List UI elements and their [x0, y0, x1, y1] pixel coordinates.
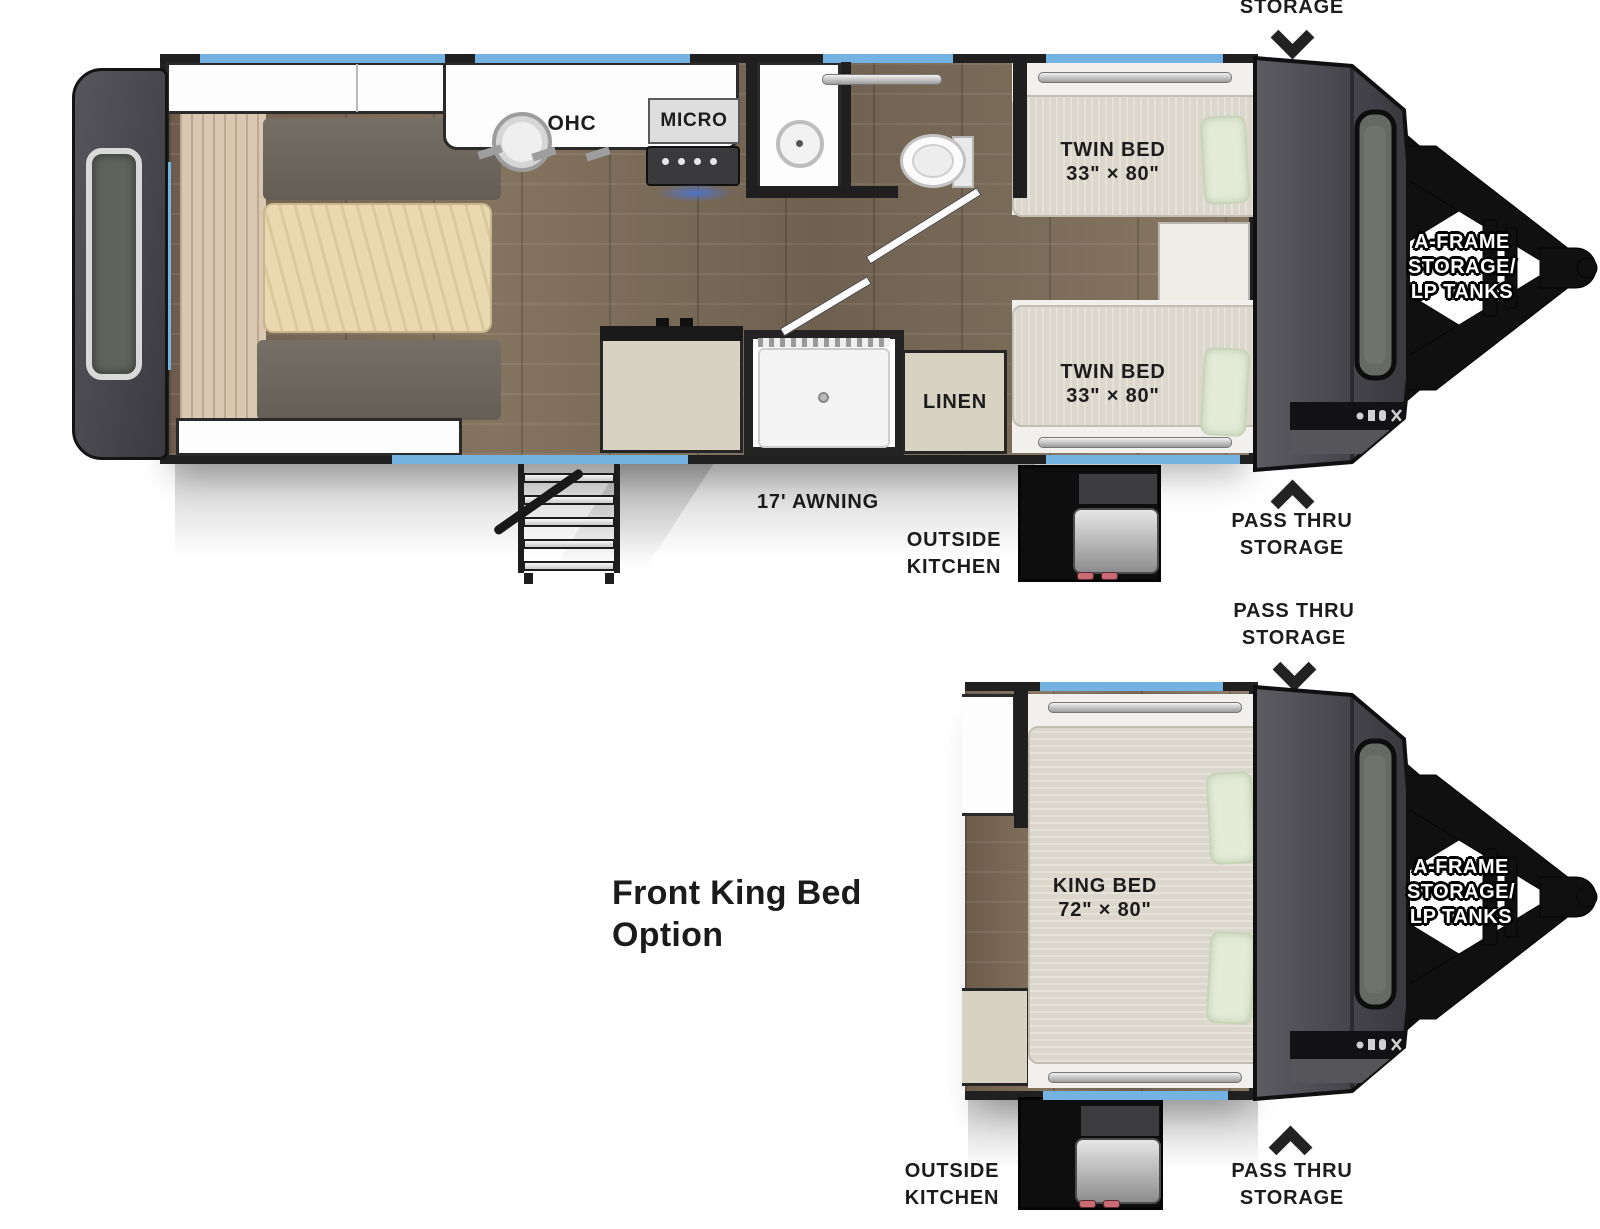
linen-label: LINEN [923, 390, 987, 414]
toilet-seat [912, 144, 954, 178]
outside-kitchen-line1: OUTSIDE [907, 527, 1002, 554]
outside-kitchen-knob [1077, 572, 1094, 580]
aframe-line3: LP TANKS [1408, 280, 1516, 305]
shower-door-track [758, 338, 890, 347]
aframe-line3: LP TANKS [1407, 905, 1515, 930]
wall-accent [1043, 1091, 1228, 1100]
bath-wall-left [746, 58, 757, 198]
pass-thru-label-bottom: PASS THRU STORAGE [1231, 1158, 1352, 1212]
outside-kitchen-unit [1018, 465, 1161, 582]
bed-rail [1038, 437, 1232, 448]
aframe-line1: A-FRAME [1407, 855, 1515, 880]
aframe-storage-label: A-FRAME STORAGE/ LP TANKS [1407, 855, 1515, 930]
pass-thru-label-top: PASS THRU STORAGE [1233, 598, 1354, 652]
pass-thru-label: PASS THRU STORAGE [1231, 508, 1352, 562]
outside-kitchen-label: OUTSIDE KITCHEN [905, 1158, 1000, 1212]
bath-shelf-bar [822, 74, 942, 85]
range-knob [662, 158, 669, 165]
fridge-handle [656, 318, 669, 327]
bath-wall-bottom [746, 186, 898, 198]
fridge [600, 326, 743, 453]
twin-bed-top-line2: 33" × 80" [1060, 162, 1165, 186]
twin-bed-bottom-line1: TWIN BED [1060, 360, 1165, 384]
wall-partition [1014, 688, 1028, 828]
range-knob [710, 158, 717, 165]
ohc-kitchen-label: OHC [547, 112, 596, 136]
nightstand [1158, 222, 1250, 310]
fridge-top-trim [600, 326, 743, 341]
step [523, 561, 615, 571]
rear-window [86, 148, 142, 380]
range-knob [678, 158, 685, 165]
king-bed-line2: 72" × 80" [1053, 898, 1157, 922]
range-stove [646, 146, 740, 186]
outside-kitchen-griddle [1075, 1138, 1161, 1204]
pass-thru-line2: STORAGE [1231, 535, 1352, 562]
outside-kitchen-knob [1079, 1200, 1096, 1208]
option-title-line2: Option [612, 914, 862, 956]
step [523, 517, 615, 527]
dinette-table [263, 203, 492, 333]
step-foot [524, 573, 533, 584]
bath-wall-right [1013, 58, 1027, 198]
bed-rail [1048, 1072, 1242, 1083]
wardrobe-paneling [180, 114, 266, 422]
wall-accent [200, 54, 445, 63]
micro-label: MICRO [660, 109, 727, 133]
wall-accent [1046, 455, 1240, 464]
floor-plan-bottom: Front King Bed Option PASS THRU STORAGE … [0, 560, 1600, 1229]
twin-bed-top-line1: TWIN BED [1060, 138, 1165, 162]
dinette-bench-bottom [257, 340, 501, 420]
king-bed-label: KING BED 72" × 80" [1053, 874, 1157, 922]
step [523, 539, 615, 549]
bath-cabinet-cropped [962, 694, 1016, 816]
fridge-handle [680, 318, 693, 327]
outside-kitchen-line1: OUTSIDE [905, 1158, 1000, 1185]
twin-bed-top-label: TWIN BED 33" × 80" [1060, 138, 1165, 186]
king-bed-line1: KING BED [1053, 874, 1157, 898]
cabinet-cropped [962, 988, 1030, 1086]
outside-kitchen-panel [1079, 474, 1157, 504]
pass-thru-top-line1: PASS THRU [1233, 598, 1354, 625]
entry-steps [518, 461, 620, 585]
shower-drain [818, 392, 829, 403]
outside-kitchen-line2: KITCHEN [905, 1185, 1000, 1212]
wall-accent [475, 54, 690, 63]
bed-rail [1048, 702, 1242, 713]
shelves [176, 418, 462, 456]
bath-sink-drain [796, 140, 803, 147]
range-knob [694, 158, 701, 165]
aframe-line2: STORAGE/ [1407, 880, 1515, 905]
outside-kitchen-knob [1101, 572, 1118, 580]
outside-kitchen-panel [1081, 1106, 1159, 1136]
floorplan-page: STORAGE OHC DINETTE SHELVES [0, 0, 1600, 1229]
pass-thru-bottom-line1: PASS THRU [1231, 1158, 1352, 1185]
wall-accent [392, 455, 688, 464]
ohc-divider [356, 64, 358, 112]
range-glow [656, 184, 734, 202]
aframe-line1: A-FRAME [1408, 230, 1516, 255]
outside-kitchen-knob [1103, 1200, 1120, 1208]
step-foot [605, 573, 614, 584]
aframe-line2: STORAGE/ [1408, 255, 1516, 280]
awning-label: 17' AWNING [757, 490, 879, 514]
outside-kitchen-griddle [1073, 508, 1159, 574]
pass-thru-bottom-line2: STORAGE [1231, 1185, 1352, 1212]
pass-thru-line1: PASS THRU [1231, 508, 1352, 535]
option-title: Front King Bed Option [612, 872, 862, 956]
floor-plan-top: STORAGE OHC DINETTE SHELVES [0, 0, 1600, 600]
bed-rail [1038, 72, 1232, 83]
ohc-cabinet-rear [166, 62, 446, 114]
wall-accent [1040, 682, 1223, 691]
option-title-line1: Front King Bed [612, 872, 862, 914]
outside-kitchen-unit [1018, 1097, 1163, 1210]
aframe-storage-label: A-FRAME STORAGE/ LP TANKS [1408, 230, 1516, 305]
twin-bed-bottom-label: TWIN BED 33" × 80" [1060, 360, 1165, 408]
wall-accent [1046, 54, 1223, 63]
twin-bed-bottom-line2: 33" × 80" [1060, 384, 1165, 408]
